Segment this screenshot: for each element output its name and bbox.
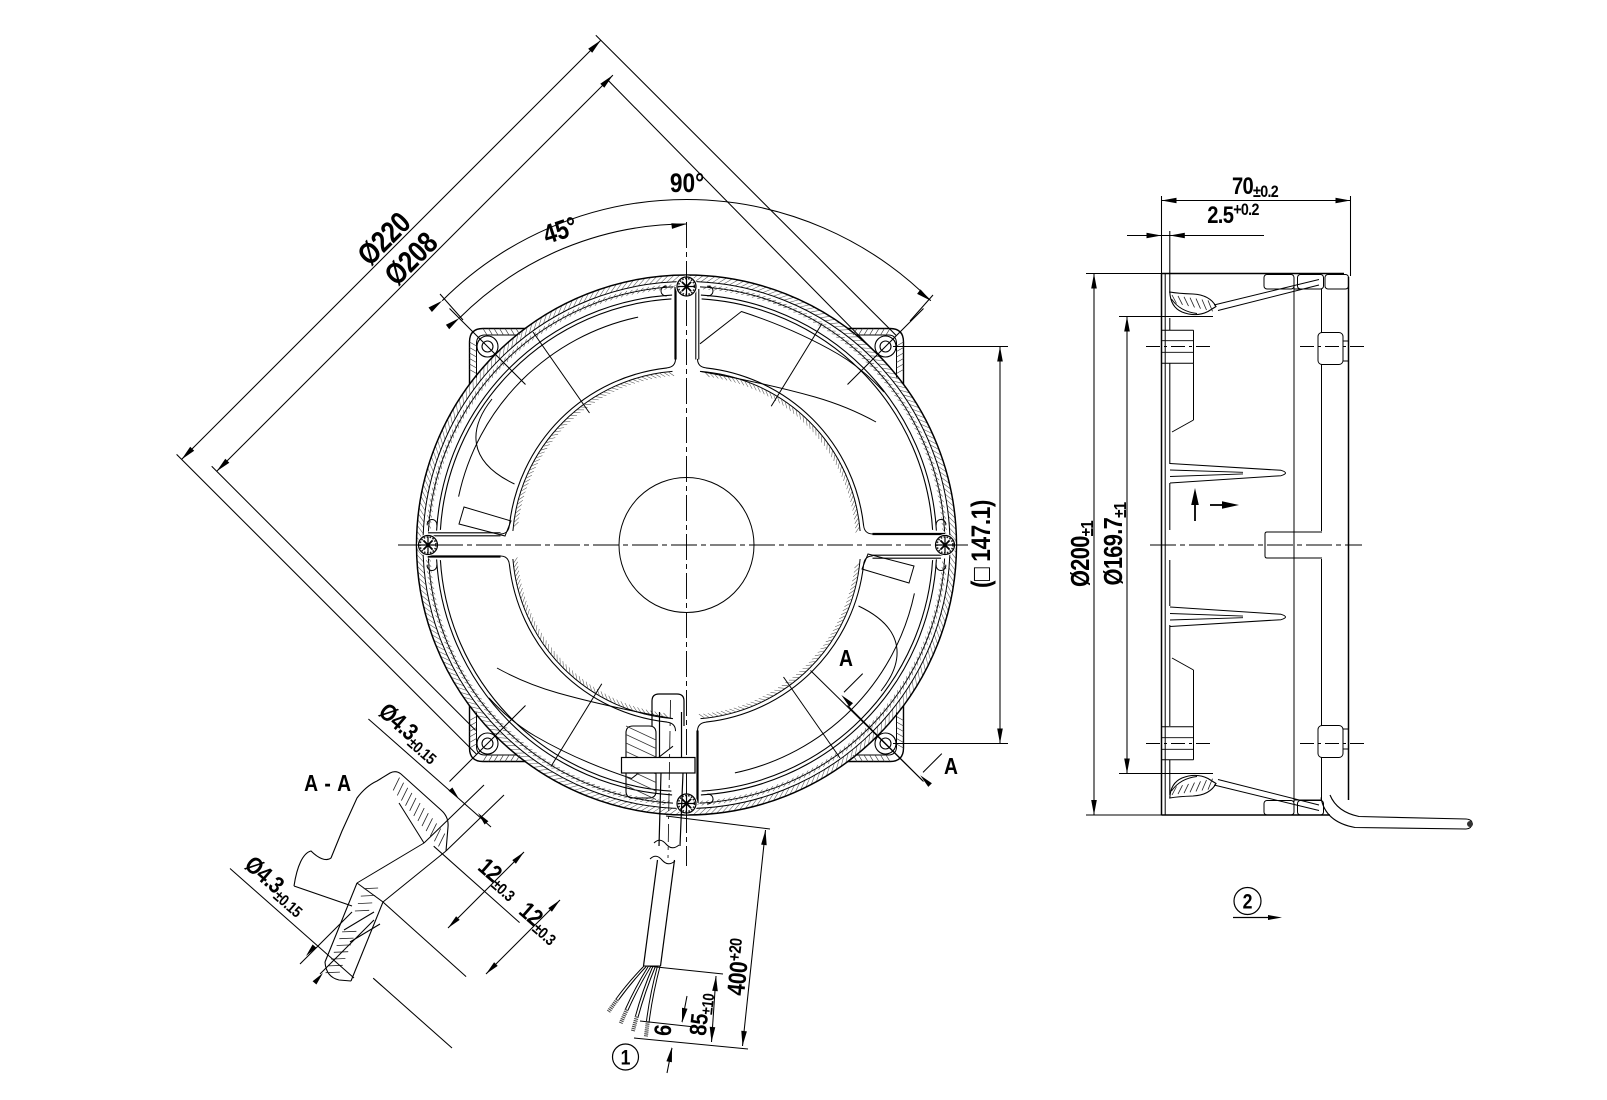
svg-text:A: A: [944, 755, 958, 780]
svg-text:A - A: A - A: [304, 772, 352, 797]
svg-text:2: 2: [1243, 890, 1253, 914]
svg-text:(□ 147.1): (□ 147.1): [966, 500, 996, 588]
svg-text:A: A: [839, 647, 853, 672]
svg-text:1: 1: [621, 1046, 631, 1070]
svg-text:90°: 90°: [670, 168, 704, 198]
